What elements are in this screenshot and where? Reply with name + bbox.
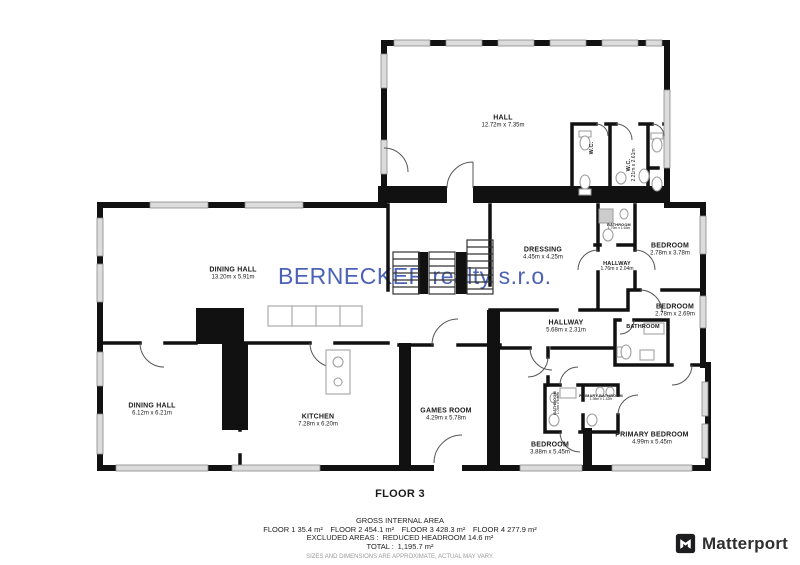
room-label-games-room: GAMES ROOM4.29m x 5.78m [420, 408, 471, 423]
door-gap [434, 462, 462, 474]
room-label-hallway-main: HALLWAY5.68m x 2.31m [546, 320, 586, 335]
room-label-bathroom-small: BATHROOM1.79m x 1.63m [607, 223, 631, 231]
gia-disclaimer: SIZES AND DIMENSIONS ARE APPROXIMATE, AC… [130, 553, 670, 562]
stairs [393, 240, 493, 294]
room-label-wc-1: W.C. [589, 142, 595, 155]
matterport-cube-icon [675, 533, 696, 554]
room-label-bedroom-3: BEDROOM3.88m x 5.45m [530, 442, 570, 457]
room-label-hall: HALL12.72m x 7.35m [481, 115, 524, 130]
room-label-wc-2: W.C.2.21m x 2.61m [626, 148, 638, 181]
room-label-bedroom-2: BEDROOM2.78m x 2.69m [655, 304, 695, 319]
room-label-primary-bathroom: PRIMARY BATHROOM1.98m x 1.42m [579, 394, 623, 402]
room-label-bedroom-1: BEDROOM2.78m x 3.78m [650, 243, 690, 258]
room-label-primary-bedroom: PRIMARY BEDROOM4.99m x 5.45m [615, 432, 688, 447]
floor-title: FLOOR 3 [180, 488, 620, 500]
gia-total: TOTAL : 1,195.7 m² [130, 543, 670, 552]
gross-internal-area: GROSS INTERNAL AREA FLOOR 1 35.4 m² FLOO… [130, 517, 670, 562]
room-label-dining-hall-1: DINING HALL13.20m x 5.91m [209, 267, 256, 282]
room-label-bathroom-tiny: BATHROOM1.05m x 1.40m [553, 391, 561, 415]
room-label-dining-hall-2: DINING HALL6.12m x 6.21m [128, 403, 175, 418]
room-label-hallway-small: HALLWAY1.76m x 2.04m [600, 261, 633, 273]
matterport-wordmark: Matterport [702, 534, 788, 554]
room-label-bathroom-mid: BATHROOM [626, 324, 660, 330]
matterport-logo: Matterport [675, 533, 788, 554]
room-label-dressing: DRESSING4.45m x 4.25m [523, 247, 563, 262]
floorplan-svg [0, 0, 800, 565]
room-label-kitchen: KITCHEN7.28m x 6.20m [298, 414, 338, 429]
